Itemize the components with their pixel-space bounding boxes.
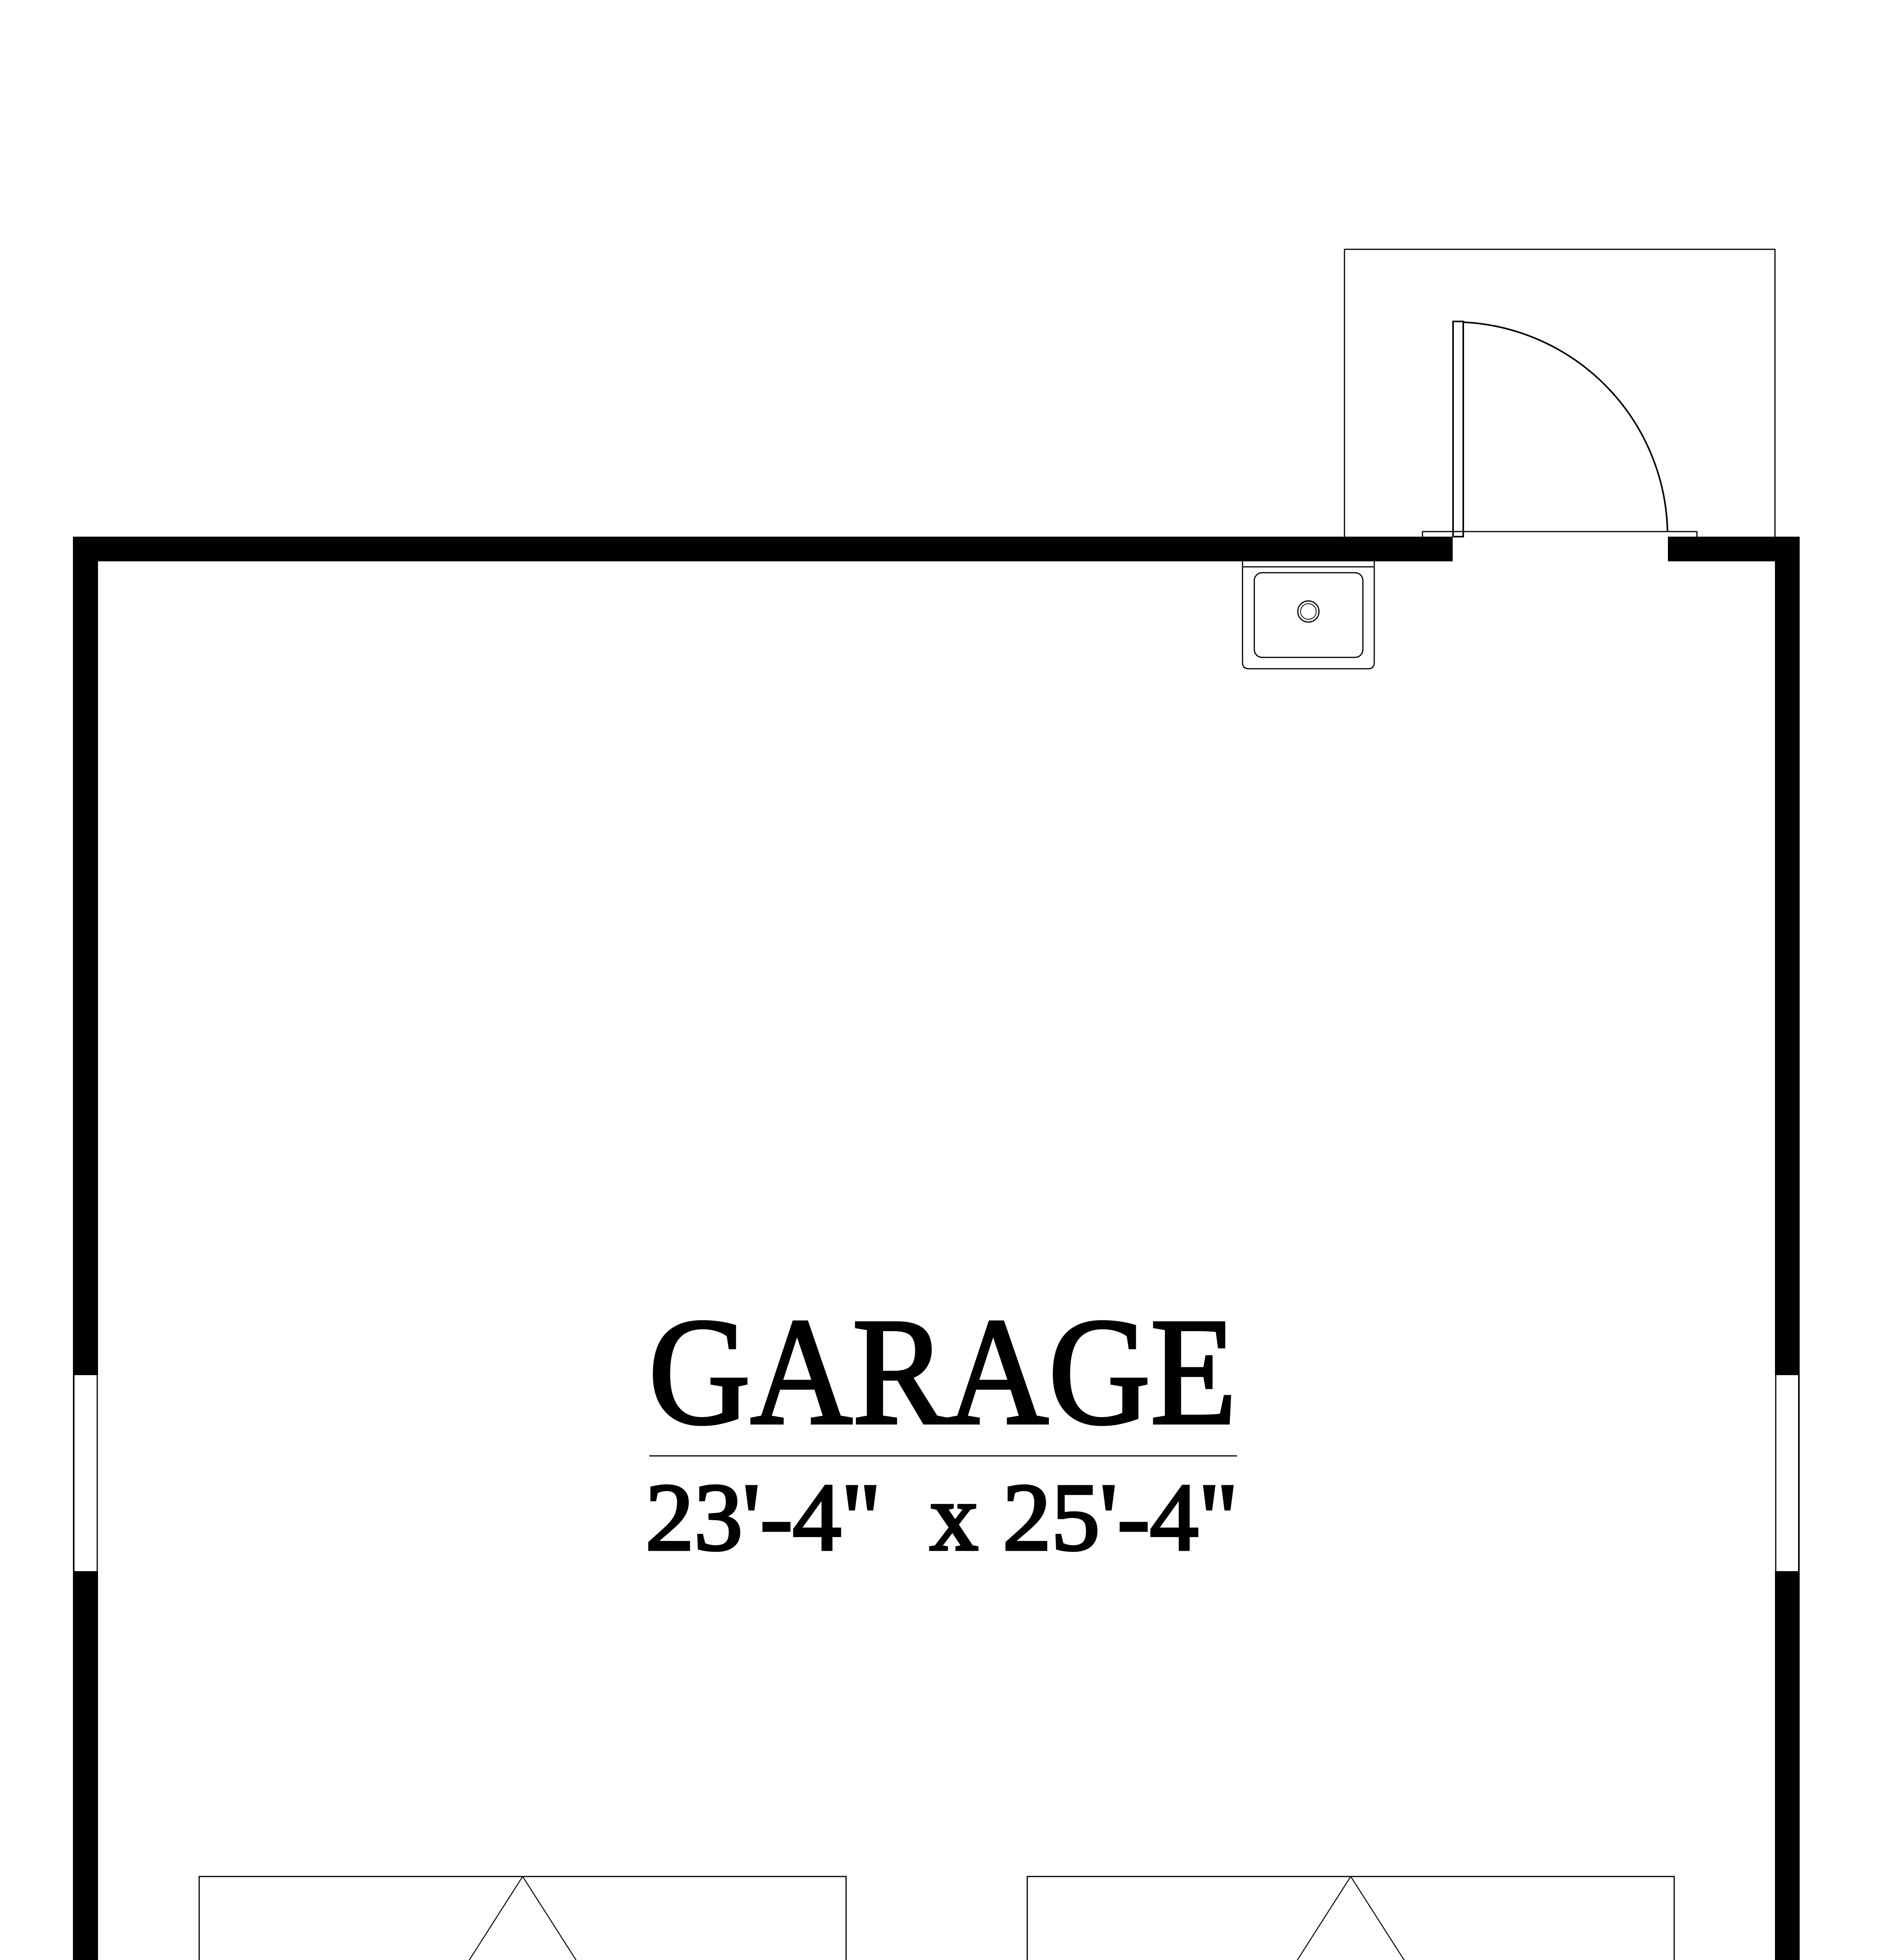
svg-text:GARAGE: GARAGE	[649, 1287, 1237, 1456]
svg-text:23'-4" x 25'-4": 23'-4" x 25'-4"	[645, 1464, 1238, 1571]
